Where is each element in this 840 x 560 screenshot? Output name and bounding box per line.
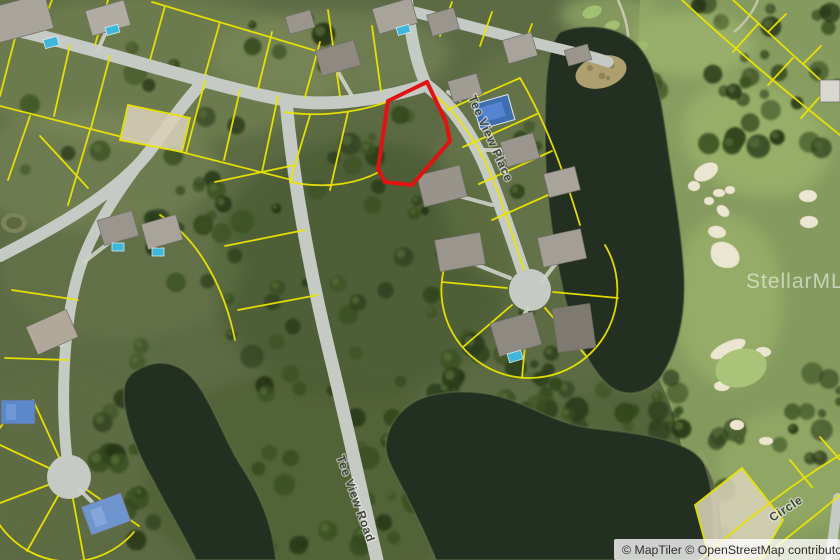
satellite-map: Tee View Place Tee View Road Circle Stel… (0, 0, 840, 560)
attribution-text: © MapTiler © OpenStreetMap contributors (622, 543, 840, 557)
stellar-mls-watermark: StellarMLS (746, 270, 840, 293)
map-attribution: © MapTiler © OpenStreetMap contributors (614, 539, 840, 560)
listing-map-image[interactable]: Tee View Place Tee View Road Circle Stel… (0, 0, 840, 560)
